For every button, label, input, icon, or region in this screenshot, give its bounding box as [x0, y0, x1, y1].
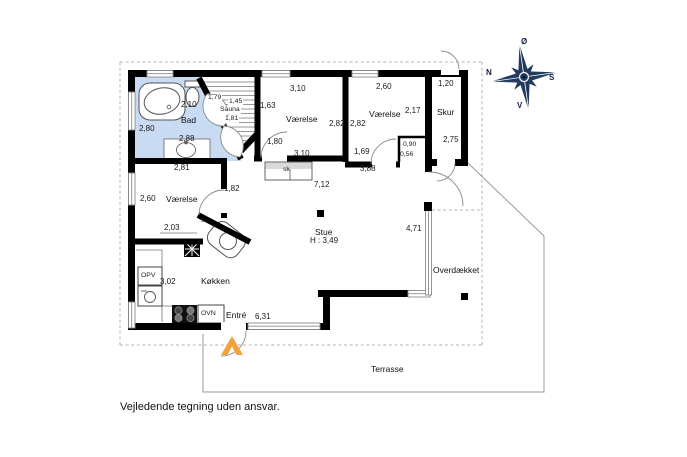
- dim-bathroom-wall: 2,81: [174, 164, 190, 172]
- dim-bathroom-bottom: 2,88: [179, 135, 195, 143]
- terrace-outline: [203, 163, 544, 392]
- closet-hall-label: sk: [283, 167, 290, 174]
- compass-south-label: S: [549, 74, 554, 82]
- dim-bedroom-right-hall: 3,88: [360, 165, 376, 173]
- dim-niche-width: 0,90: [403, 142, 416, 149]
- dim-covered-window: 4,71: [406, 225, 422, 233]
- dim-living-ceiling: H : 3,49: [310, 237, 338, 245]
- dim-bedroom-right-left: 2,82: [350, 120, 366, 128]
- floorplan-drawing: [0, 0, 687, 457]
- dim-bedroom-mid-top: 3,10: [290, 85, 306, 93]
- dim-sauna-a: 1,79: [207, 95, 222, 102]
- dim-bathroom-width: 2,10: [181, 101, 197, 109]
- stove-icon: [172, 305, 197, 323]
- dim-bedroom-right-inner: 1,69: [354, 148, 370, 156]
- dim-bedroom-left-left: 2,60: [140, 195, 156, 203]
- kitchen-sink-icon: [138, 286, 162, 306]
- compass-west-label: V: [517, 102, 522, 110]
- oven-label: OVN: [201, 311, 216, 318]
- dim-entry-width: 6,31: [255, 313, 271, 321]
- room-label-shed: Skur: [437, 108, 454, 117]
- room-label-sauna: Sauna: [219, 107, 241, 114]
- closet-kitchen-label: sk: [201, 218, 208, 225]
- dim-bedroom-right-top: 2,60: [376, 83, 392, 91]
- roof-posts: [317, 202, 468, 300]
- area-label-covered: Overdækket: [433, 266, 479, 275]
- compass-east-label: Ø: [521, 38, 527, 46]
- dim-shed-width: 1,20: [438, 80, 454, 88]
- compass-north-label: N: [486, 69, 492, 77]
- dim-bedroom-right-right: 2,17: [405, 107, 421, 115]
- dim-sauna-c: 1,81: [224, 116, 239, 123]
- dim-bedroom-mid-left: 1,63: [260, 102, 276, 110]
- room-label-kitchen: Køkken: [201, 277, 230, 286]
- room-label-bedroom-right: Værelse: [369, 110, 401, 119]
- floorplan-page: 2,10 Bad 2,80 2,88 2,81 1,79 1,45 Sauna …: [0, 0, 687, 457]
- room-label-bathroom: Bad: [181, 116, 196, 125]
- dim-bedroom-mid-door: 1,80: [267, 138, 283, 146]
- disclaimer-text: Vejledende tegning uden ansvar.: [120, 401, 280, 413]
- dim-shed-depth: 2,75: [443, 136, 459, 144]
- dim-bathroom-left: 2,80: [139, 125, 155, 133]
- dishwasher-label: OPV: [141, 273, 155, 280]
- dim-niche-depth: 0,56: [400, 152, 413, 159]
- dim-bedroom-left-inner: 2,03: [164, 224, 180, 232]
- dim-kitchen-width: 3,02: [160, 278, 176, 286]
- dim-bedroom-mid-bottom: 3,10: [294, 150, 310, 158]
- dim-bedroom-left-door: 1,82: [224, 185, 240, 193]
- dim-sauna-b: 1,45: [228, 99, 243, 106]
- dim-hall-length: 7,12: [314, 181, 330, 189]
- room-label-bedroom-left: Værelse: [166, 195, 198, 204]
- room-label-entry: Entré: [226, 311, 246, 320]
- bathtub-icon: [139, 83, 185, 120]
- dim-bedroom-mid-right: 2,82: [329, 120, 345, 128]
- room-label-bedroom-mid: Værelse: [286, 115, 318, 124]
- area-label-terrace: Terrasse: [371, 365, 404, 374]
